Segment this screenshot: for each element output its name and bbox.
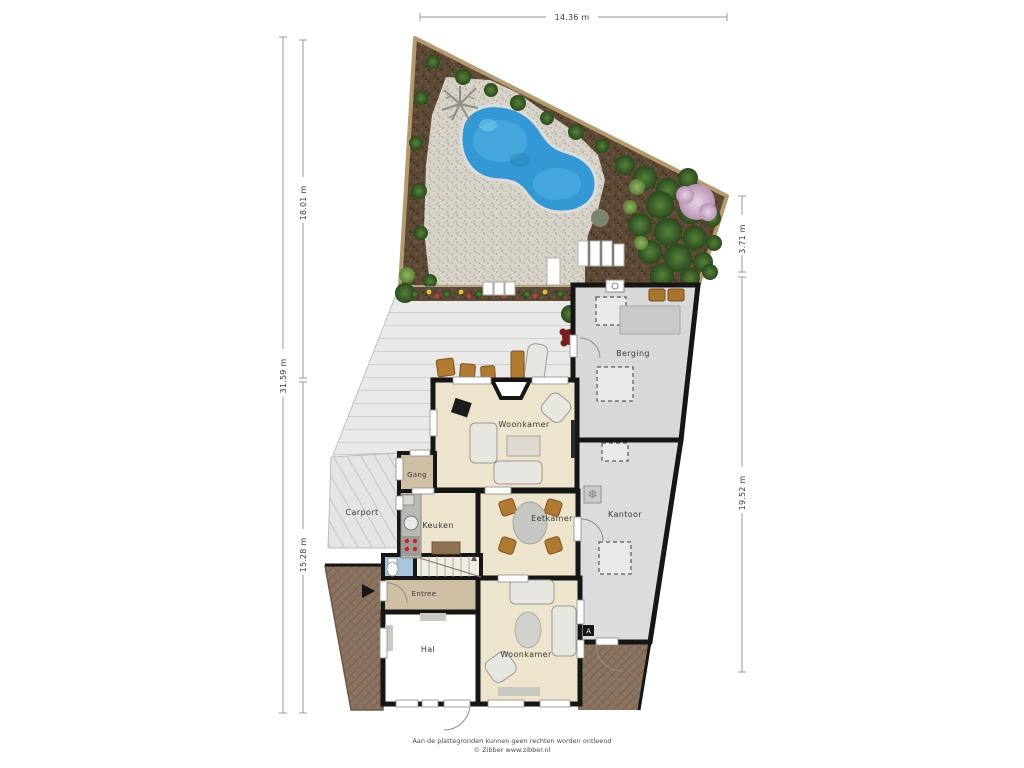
sofa bbox=[494, 461, 542, 484]
ac-unit-icon: ❆ bbox=[584, 486, 601, 503]
mat bbox=[498, 687, 540, 696]
kitchen-sink bbox=[404, 516, 418, 530]
label-woonkamer-beneden: Woonkamer bbox=[500, 650, 552, 659]
skylight bbox=[597, 367, 633, 401]
camera-marker: A bbox=[583, 625, 594, 636]
stove bbox=[402, 536, 420, 556]
skylight bbox=[602, 443, 628, 461]
label-entree: Entree bbox=[412, 590, 437, 598]
svg-text:❆: ❆ bbox=[588, 488, 597, 501]
dining-table bbox=[513, 502, 547, 544]
label-hal: Hal bbox=[421, 645, 435, 654]
dim-left-lower: 15.28 m bbox=[299, 538, 308, 573]
plant-gray bbox=[591, 209, 609, 227]
dim-right-upper: 3.71 m bbox=[738, 224, 747, 253]
chimney bbox=[492, 380, 530, 398]
garden-bench bbox=[511, 351, 524, 378]
tv bbox=[571, 420, 575, 458]
cushion bbox=[649, 289, 665, 301]
label-kantoor: Kantoor bbox=[608, 510, 642, 519]
svg-text:A: A bbox=[586, 628, 591, 636]
sofa bbox=[510, 580, 554, 604]
label-woonkamer-boven: Woonkamer bbox=[498, 420, 550, 429]
dim-left-outer: 31.59 m bbox=[279, 359, 288, 394]
footer-copyright: © Zibber www.zibber.nl bbox=[474, 746, 551, 754]
label-eetkamer: Eetkamer bbox=[531, 514, 573, 523]
side-table bbox=[432, 542, 460, 554]
garden-chair bbox=[436, 358, 455, 377]
skylight bbox=[599, 542, 631, 574]
sofa bbox=[470, 423, 497, 463]
sofa bbox=[552, 606, 576, 656]
garden-steps bbox=[483, 282, 515, 295]
garden bbox=[399, 38, 727, 288]
dim-left-upper: 18.01 m bbox=[299, 186, 308, 221]
driveway-left bbox=[325, 566, 383, 710]
cushion bbox=[668, 289, 684, 301]
vent-box bbox=[606, 280, 624, 292]
label-gang: Gang bbox=[407, 471, 427, 479]
dim-top: 14.36 m bbox=[555, 13, 590, 22]
floorplan-canvas: ❆ bbox=[0, 0, 1024, 768]
label-carport: Carport bbox=[346, 508, 379, 517]
room-hal bbox=[383, 612, 480, 704]
footer-disclaimer: Aan de plattegronden kunnen geen rechten… bbox=[412, 737, 611, 745]
berging-room bbox=[573, 280, 698, 440]
kantoor-room: ❆ bbox=[576, 440, 681, 642]
workbench bbox=[620, 306, 680, 334]
label-berging: Berging bbox=[616, 349, 650, 358]
coffee-table bbox=[507, 436, 540, 456]
toilet-fixture bbox=[387, 558, 398, 576]
footer-note: Aan de plattegronden kunnen geen rechten… bbox=[412, 737, 611, 754]
label-keuken: Keuken bbox=[422, 521, 454, 530]
dim-right-lower: 19.52 m bbox=[738, 476, 747, 511]
carport bbox=[328, 453, 399, 548]
floorplan-svg: ❆ bbox=[0, 0, 1024, 768]
round-table bbox=[515, 612, 541, 648]
